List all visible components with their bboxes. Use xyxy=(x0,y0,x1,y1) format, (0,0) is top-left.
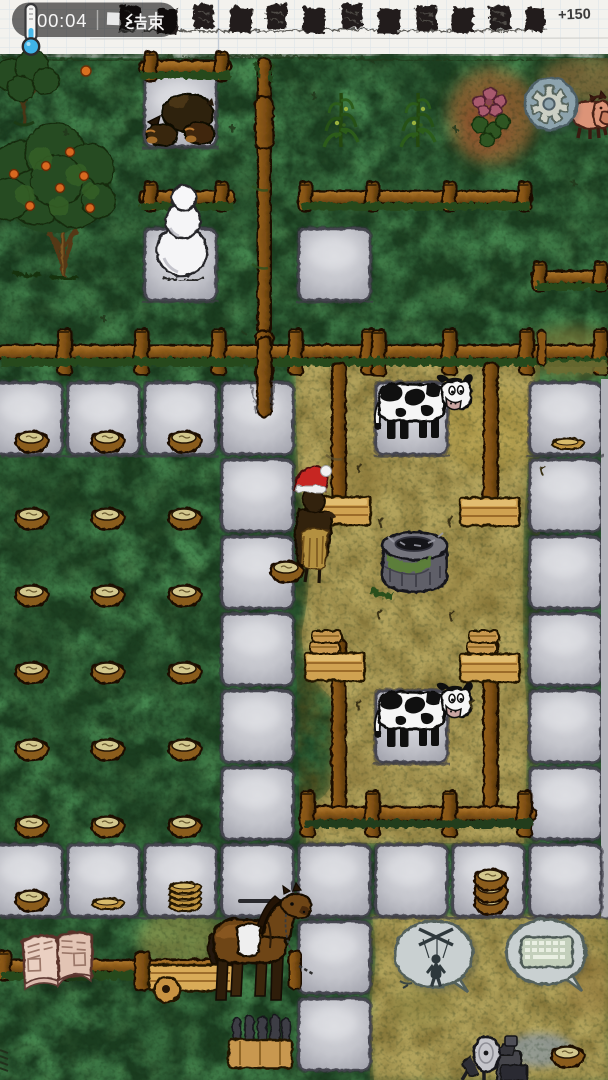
svg-text:00:04: 00:04 xyxy=(37,10,87,31)
svg-text:+150: +150 xyxy=(558,6,591,23)
